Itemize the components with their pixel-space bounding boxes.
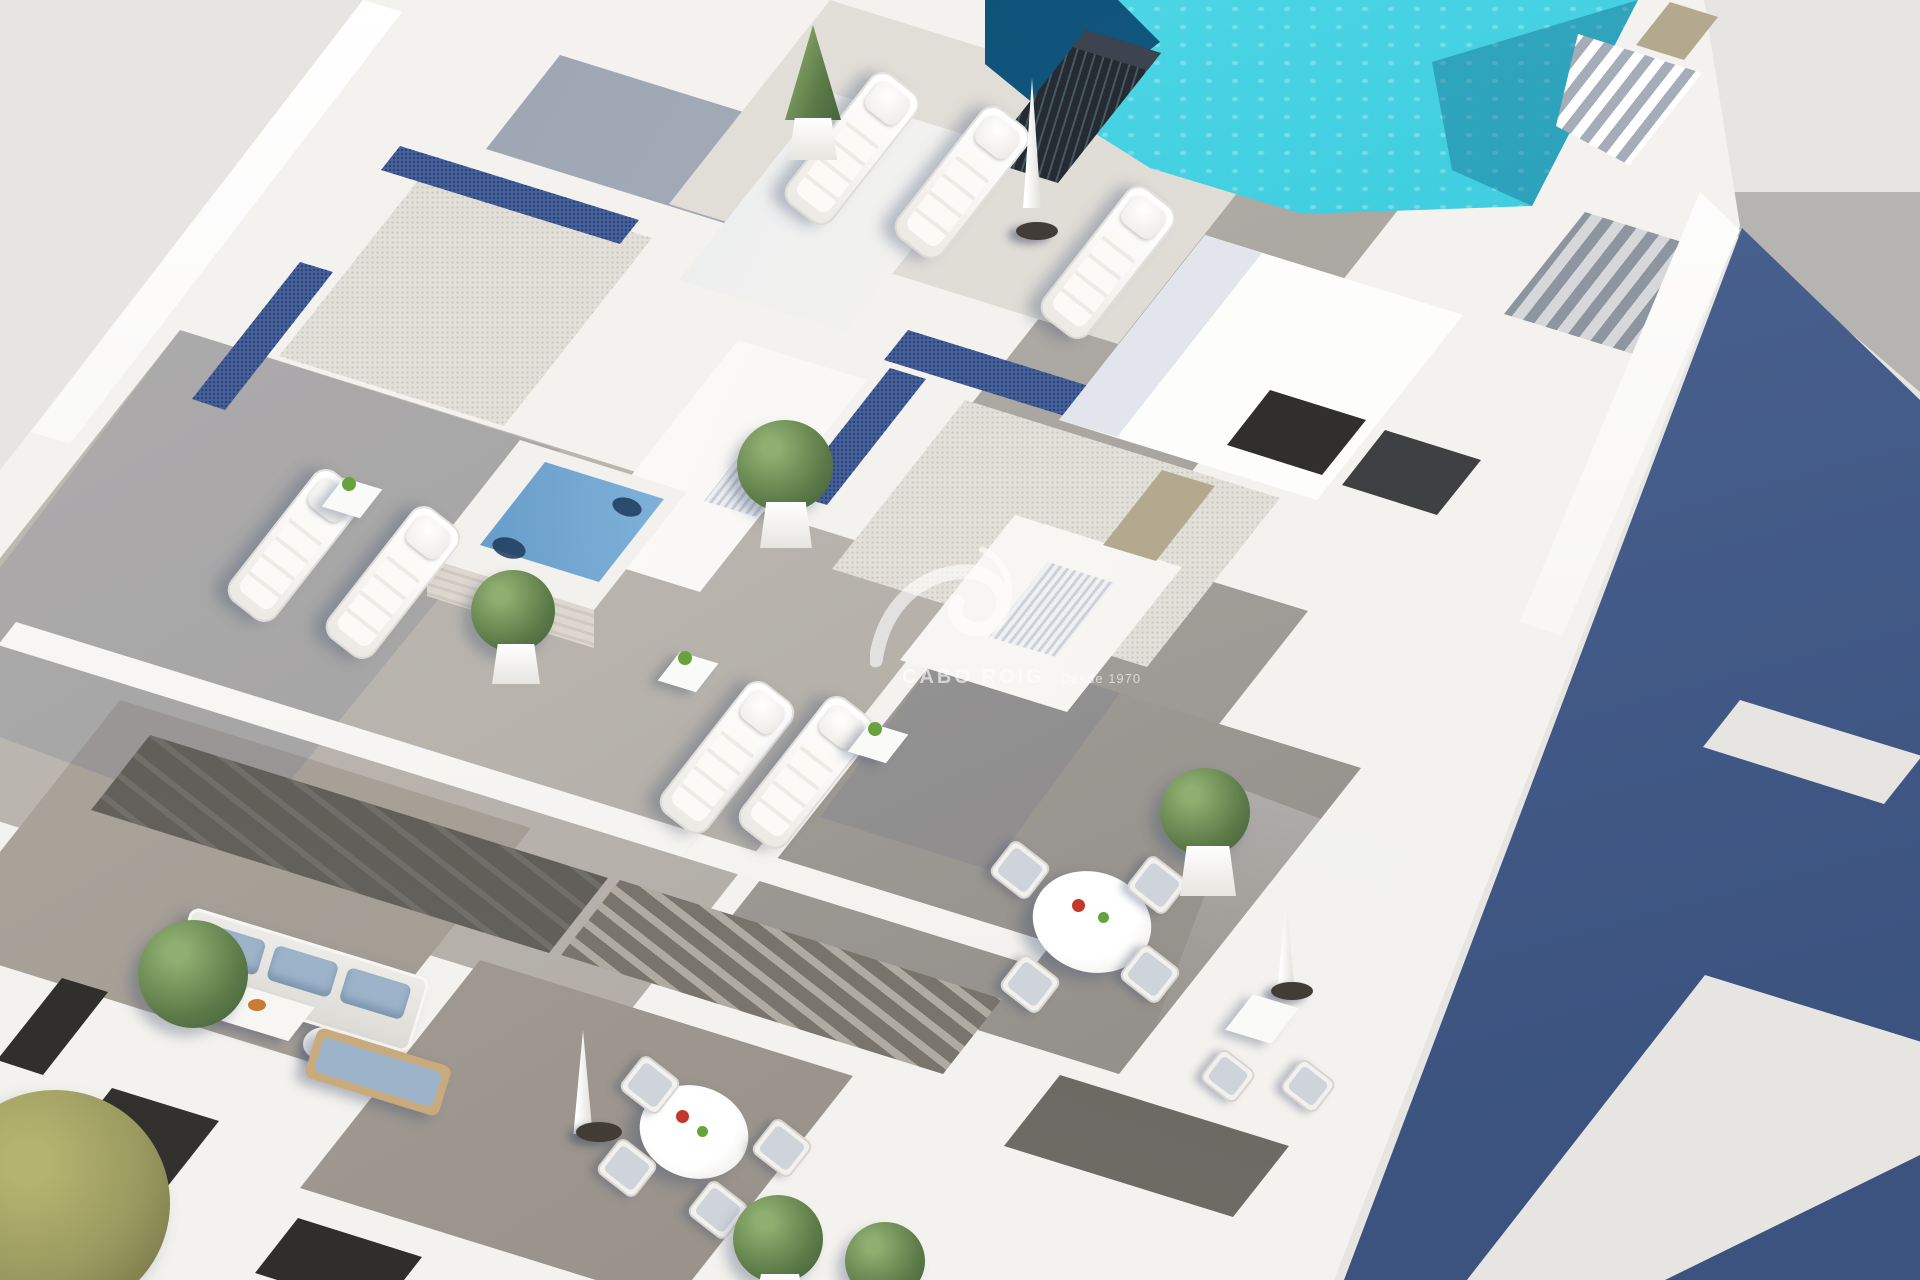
watermark-text: CABO ROIG Desde 1970: [902, 666, 1141, 689]
sofa-cushion: [338, 967, 412, 1021]
fruit-bowl: [248, 999, 266, 1011]
lounger-pillow: [1117, 191, 1169, 242]
lounger-pillow: [402, 511, 454, 562]
plate: [1056, 928, 1072, 938]
lounger-pillow: [736, 686, 788, 737]
red-apple: [1072, 899, 1085, 912]
planter-bush: [471, 570, 555, 652]
parasol-base: [1016, 222, 1058, 240]
green-apple: [1098, 912, 1109, 923]
plant-pot: [760, 502, 812, 548]
watermark: CABO ROIG Desde 1970: [852, 540, 1112, 710]
planter-box: [1180, 846, 1236, 896]
red-apple: [676, 1110, 689, 1123]
sofa-cushion: [266, 945, 340, 999]
cabo-roig-logo: [870, 540, 1020, 670]
lounger-pillow: [971, 111, 1023, 162]
watermark-brand: CABO ROIG: [902, 666, 1045, 688]
green-apple: [697, 1126, 708, 1137]
table-plant: [868, 722, 882, 736]
planter-bush: [733, 1195, 823, 1280]
table-plant: [342, 477, 356, 491]
table-plant: [678, 651, 692, 665]
lounger-pillow: [861, 77, 913, 128]
parasol-base: [1271, 982, 1313, 1000]
planter-bush: [1160, 768, 1250, 856]
plant-pot: [755, 1274, 805, 1280]
planter-bush: [737, 420, 833, 512]
watermark-tagline: Desde 1970: [1061, 671, 1141, 686]
plant-pot: [492, 644, 540, 684]
rooftop-render-scene: CABO ROIG Desde 1970: [0, 0, 1920, 1280]
parasol-base: [576, 1122, 622, 1142]
plant-pot: [789, 118, 837, 160]
planter-bush: [138, 920, 248, 1028]
